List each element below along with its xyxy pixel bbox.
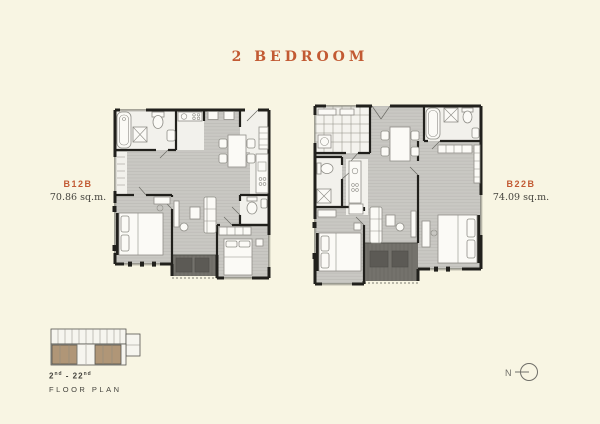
pillow-icon bbox=[467, 219, 475, 237]
north-label: N bbox=[505, 368, 513, 378]
outdoor-furniture-icon bbox=[195, 258, 209, 272]
washer-icon bbox=[318, 135, 331, 148]
wardrobe-icon bbox=[438, 145, 472, 153]
headboard bbox=[316, 233, 319, 271]
cabinet-icon bbox=[224, 112, 234, 120]
pillow-icon bbox=[321, 253, 329, 268]
unit-area: 74.09 sq.m. bbox=[476, 192, 566, 203]
nightstand-icon bbox=[354, 223, 361, 230]
keyplan-caption-label: FLOOR PLAN bbox=[49, 385, 122, 394]
ottoman-icon bbox=[386, 215, 395, 226]
fridge-icon bbox=[349, 204, 363, 214]
bathtub-icon bbox=[426, 108, 440, 139]
entry-closet-icon bbox=[259, 127, 268, 149]
chair-icon bbox=[381, 147, 389, 156]
pillow-icon bbox=[239, 241, 250, 247]
desk-icon bbox=[422, 221, 430, 247]
outdoor-furniture-icon bbox=[370, 251, 388, 267]
chair-icon bbox=[247, 139, 255, 148]
keyplan-highlight-unit bbox=[95, 345, 121, 364]
chair-icon bbox=[411, 131, 419, 140]
keyplan-caption: 2nd - 22nd FLOOR PLAN bbox=[49, 371, 122, 394]
keyplan-floor-range: 2nd - 22nd bbox=[49, 371, 122, 381]
cabinet-icon bbox=[208, 112, 218, 120]
foyer-fixtures bbox=[259, 127, 268, 149]
pillow-icon bbox=[321, 236, 329, 251]
chair-icon bbox=[219, 154, 227, 163]
kitchen-fixtures bbox=[349, 161, 363, 214]
shelf-icon bbox=[340, 109, 354, 115]
unit-label-b22b: B22B 74.09 sq.m. bbox=[476, 179, 566, 203]
outdoor-furniture-icon bbox=[176, 258, 192, 272]
toilet-icon bbox=[463, 111, 472, 123]
keyplan-highlight-unit bbox=[52, 345, 77, 364]
north-indicator: N bbox=[500, 357, 556, 387]
toilet-icon bbox=[153, 116, 163, 129]
pillow-icon bbox=[226, 241, 237, 247]
unit-code: B12B bbox=[33, 179, 123, 189]
page: 2 BEDROOM bbox=[0, 0, 600, 424]
toilet-tank bbox=[317, 163, 321, 174]
sink-icon bbox=[472, 128, 479, 138]
kitchen-counter-icon bbox=[349, 161, 361, 203]
coffee-table-icon bbox=[180, 223, 188, 231]
sofa-icon bbox=[204, 197, 216, 233]
sink-icon bbox=[167, 130, 175, 141]
chair-icon bbox=[411, 147, 419, 156]
toilet-icon bbox=[321, 164, 333, 174]
headboard bbox=[477, 215, 480, 263]
unit-code: B22B bbox=[476, 179, 566, 189]
balcony bbox=[172, 255, 217, 278]
kitchen-strip-fixtures bbox=[256, 154, 268, 193]
dining-table-icon bbox=[390, 127, 410, 161]
ottoman-icon bbox=[190, 207, 200, 219]
pillow-icon bbox=[467, 240, 475, 258]
balcony bbox=[364, 243, 418, 283]
dining-table-icon bbox=[228, 135, 246, 167]
north-icon bbox=[515, 364, 538, 381]
desk-icon bbox=[318, 210, 336, 217]
nightstand-icon bbox=[256, 239, 263, 246]
sink-icon bbox=[261, 199, 267, 208]
unit-area: 70.86 sq.m. bbox=[33, 192, 123, 203]
coffee-table-icon bbox=[396, 223, 404, 231]
headboard bbox=[116, 213, 119, 255]
keyplan bbox=[48, 324, 143, 368]
pillow-icon bbox=[121, 235, 129, 251]
page-title: 2 BEDROOM bbox=[0, 49, 600, 65]
chair-icon bbox=[247, 154, 255, 163]
tv-cabinet-icon bbox=[411, 211, 416, 237]
tv-cabinet-icon bbox=[174, 201, 179, 227]
outdoor-furniture-icon bbox=[392, 251, 408, 267]
desk-icon bbox=[154, 197, 170, 204]
floorplan-b12b bbox=[112, 107, 272, 291]
toilet-tank bbox=[247, 197, 257, 201]
sofa-icon bbox=[370, 207, 382, 243]
floorplan-b22b bbox=[312, 103, 484, 287]
kitchen-counter-icon bbox=[256, 154, 268, 193]
toilet-icon bbox=[247, 202, 257, 214]
chair-icon bbox=[219, 139, 227, 148]
unit-label-b12b: B12B 70.86 sq.m. bbox=[33, 179, 123, 203]
chair-icon bbox=[381, 131, 389, 140]
shelf-icon bbox=[318, 109, 336, 115]
pillow-icon bbox=[121, 216, 129, 232]
